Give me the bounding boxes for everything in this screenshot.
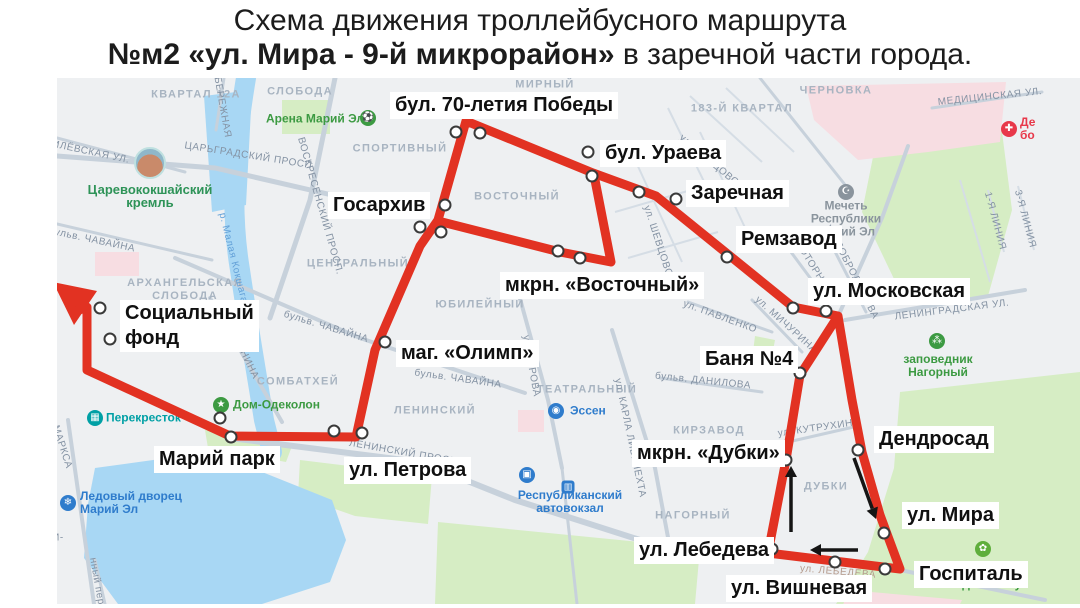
stop-label: Госархив [328,192,430,219]
stop-label: Госпиталь [914,561,1028,588]
stop-label: ул. Петрова [344,457,471,484]
stop-label: Заречная [686,180,789,207]
title-route-number: №м2 «ул. Мира - 9-й микрорайон» [108,38,615,71]
title-line2: №м2 «ул. Мира - 9-й микрорайон» в заречн… [0,38,1080,72]
stop-labels-layer: бул. 70-летия Победыбул. УраеваЗаречнаяР… [57,78,1080,604]
stop-label: мкрн. «Дубки» [632,440,785,467]
city-map: КВАРТАЛ 12АСЛОБОДАМИРНЫЙСПОРТИВНЫЙВОСТОЧ… [57,78,1080,604]
stop-label: Баня №4 [700,346,798,373]
title-line2-rest: в заречной части города. [615,38,973,71]
stop-label: ул. Лебедева [634,537,774,564]
scheme-title: Схема движения троллейбусного маршрута №… [0,4,1080,72]
stop-label: маг. «Олимп» [396,340,539,367]
infographic-page: { "title": { "line1": "Схема движения тр… [0,0,1080,608]
stop-label: Социальный фонд [120,300,259,352]
stop-label: ул. Вишневая [726,575,872,602]
stop-label: Марий парк [154,446,280,473]
stop-label: Дендросад [874,426,994,453]
stop-label: ул. Мира [902,502,999,529]
stop-label: бул. 70-летия Победы [390,92,618,119]
stop-label: бул. Ураева [600,140,726,167]
stop-label: Ремзавод [736,226,842,253]
title-line1: Схема движения троллейбусного маршрута [0,4,1080,38]
stop-label: ул. Московская [808,278,970,305]
stop-label: мкрн. «Восточный» [500,272,704,299]
